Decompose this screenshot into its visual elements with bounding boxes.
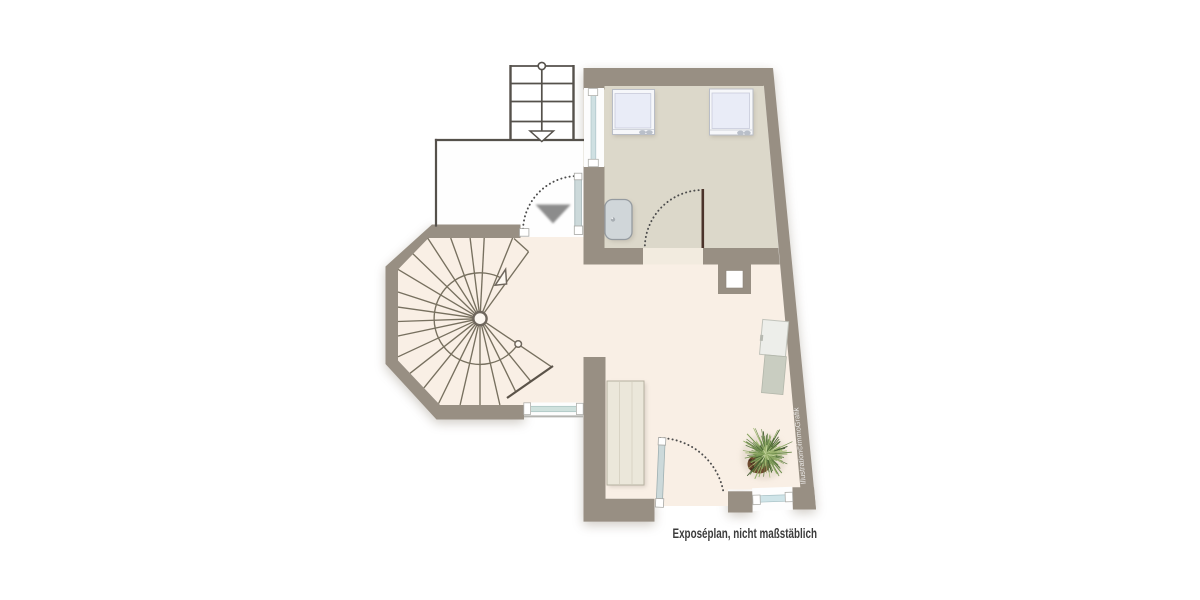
svg-text:Exposéplan, nicht maßstäblich: Exposéplan, nicht maßstäblich [673, 526, 818, 541]
